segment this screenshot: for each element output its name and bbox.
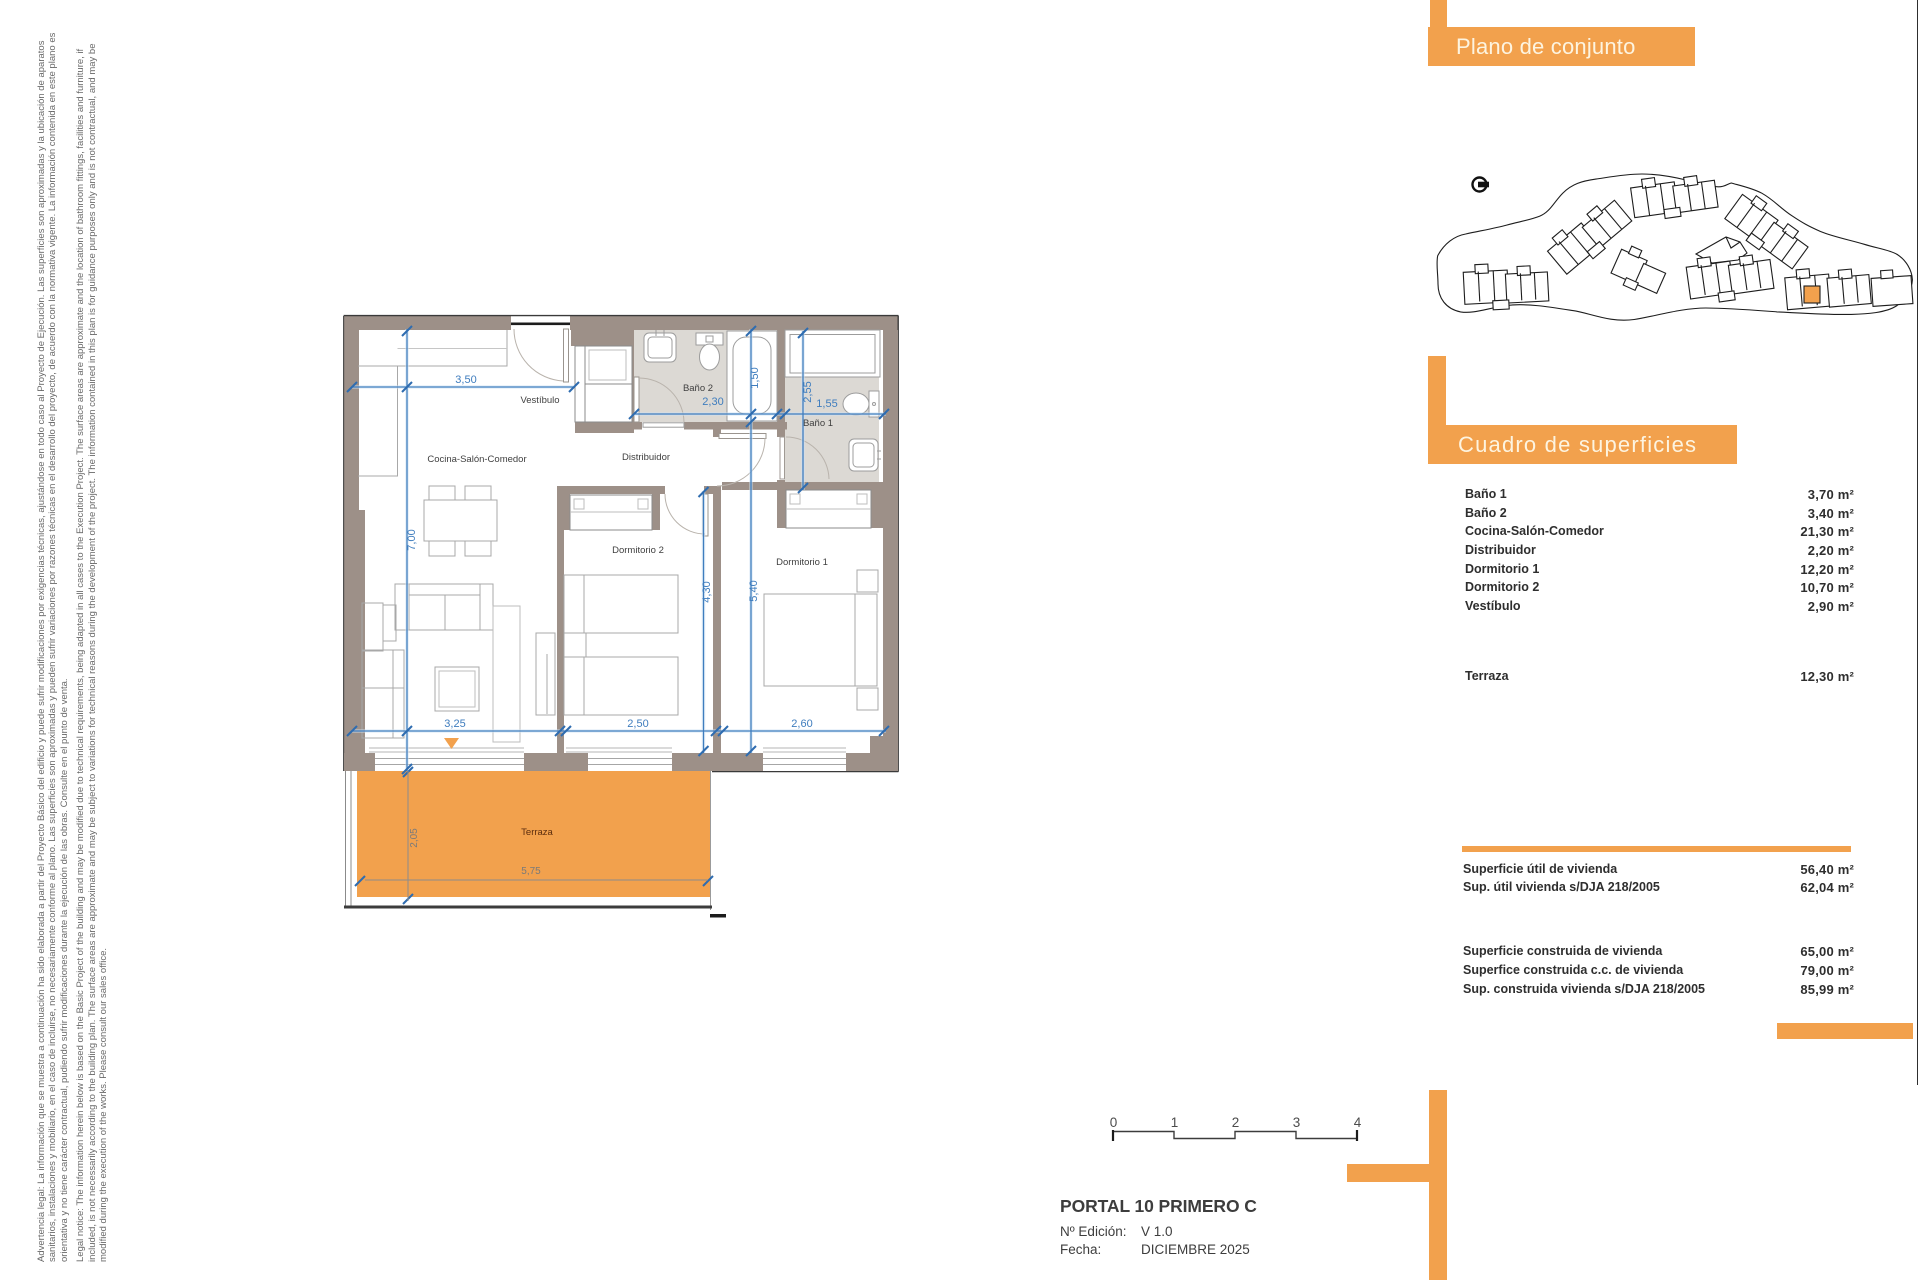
svg-text:2,30: 2,30 (702, 396, 723, 408)
svg-text:5,75: 5,75 (521, 866, 541, 877)
svg-text:0: 0 (1110, 1115, 1118, 1130)
svg-text:Dormitorio 1: Dormitorio 1 (776, 557, 828, 568)
svg-text:3: 3 (1293, 1115, 1301, 1130)
svg-text:Baño 2: Baño 2 (683, 383, 713, 394)
svg-text:Cocina-Salón-Comedor: Cocina-Salón-Comedor (427, 454, 526, 465)
svg-text:Distribuidor: Distribuidor (622, 452, 670, 463)
svg-text:3,25: 3,25 (444, 718, 465, 730)
svg-text:1: 1 (1171, 1115, 1179, 1130)
svg-text:2,05: 2,05 (409, 828, 420, 848)
svg-text:2,50: 2,50 (627, 718, 648, 730)
svg-text:Baño 1: Baño 1 (803, 418, 833, 429)
svg-text:3,50: 3,50 (455, 374, 476, 386)
svg-text:Terraza: Terraza (521, 827, 553, 838)
svg-text:1,55: 1,55 (816, 398, 837, 410)
svg-text:2,60: 2,60 (791, 718, 812, 730)
svg-text:Vestíbulo: Vestíbulo (520, 395, 559, 406)
svg-text:Dormitorio 2: Dormitorio 2 (612, 545, 664, 556)
svg-text:4,30: 4,30 (701, 581, 713, 602)
svg-text:7,00: 7,00 (406, 529, 418, 550)
svg-text:2,55: 2,55 (802, 381, 814, 402)
svg-text:1,50: 1,50 (749, 367, 761, 388)
svg-text:4: 4 (1354, 1115, 1362, 1130)
svg-text:2: 2 (1232, 1115, 1240, 1130)
svg-text:5,40: 5,40 (748, 580, 760, 601)
